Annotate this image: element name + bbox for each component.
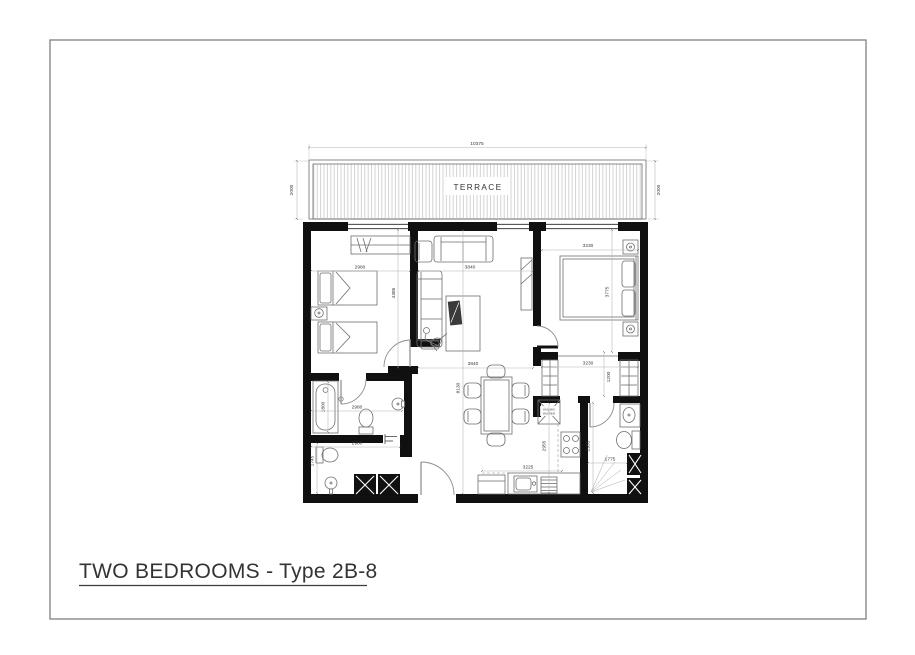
door-bathroom2 xyxy=(590,403,614,427)
dining-table-inner xyxy=(484,380,509,431)
stove xyxy=(561,432,580,457)
dim-living-lower-width: 3840 xyxy=(468,361,479,367)
title-block: TWO BEDROOMS - Type 2B-8 xyxy=(79,560,378,586)
closet-left xyxy=(542,360,558,396)
dining-table xyxy=(481,377,512,434)
shaft-left-2 xyxy=(378,474,400,496)
door-wc-sliding xyxy=(385,434,397,444)
dining-furniture xyxy=(464,365,529,446)
dim-closet-width: 3230 xyxy=(583,361,594,367)
single-bed-1 xyxy=(318,271,377,305)
wall-wc-top xyxy=(303,435,383,443)
dim-master-width: 3230 xyxy=(583,243,594,249)
wall-bathroom2-top-right xyxy=(613,396,648,403)
window-bedroom xyxy=(348,224,408,228)
wall-corner-piece xyxy=(388,366,418,374)
terrace: TERRACE xyxy=(309,160,646,219)
floor-plan-sheet: TERRACE xyxy=(0,0,915,655)
wall-wc-right xyxy=(400,435,412,457)
nightstand-lamp xyxy=(311,307,327,320)
dim-terrace-width: 10375 xyxy=(470,141,484,147)
console-shelf xyxy=(521,258,532,310)
window-living xyxy=(497,224,529,228)
dim-kitchen-depth: 2955 xyxy=(542,440,548,451)
wardrobe xyxy=(351,236,410,254)
drawing-sheet: TERRACE xyxy=(0,0,915,655)
dim-wc-length: 1745 xyxy=(310,455,316,466)
wall-bedroom-bottom-left xyxy=(303,373,339,381)
door-entrance xyxy=(421,462,454,495)
single-bed-2 xyxy=(318,322,377,353)
door-master xyxy=(537,326,558,347)
dim-terrace-depth-left: 2000 xyxy=(289,184,295,195)
shaft-right-2 xyxy=(627,478,643,496)
plan-title: TWO BEDROOMS - Type 2B-8 xyxy=(79,560,378,583)
dim-bathroom2-width: 1775 xyxy=(605,457,616,463)
nightstand-bottom xyxy=(623,322,638,336)
wall-bedroom-bottom-right xyxy=(366,373,410,381)
dim-bathroom2-depth: 2955 xyxy=(586,440,592,451)
shaft-right-1 xyxy=(627,453,643,475)
dim-terrace-depth-right: 2000 xyxy=(656,184,662,195)
toilet-bathroom2 xyxy=(617,431,641,449)
toilet-bathroom1 xyxy=(359,409,373,434)
service-shafts xyxy=(354,453,643,496)
sink-bathroom1 xyxy=(392,398,405,410)
wall-top-2 xyxy=(408,222,497,231)
master-bedroom-furniture xyxy=(560,240,638,336)
shaft-left-1 xyxy=(354,474,376,496)
wall-niche-left-stub xyxy=(533,352,558,360)
kitchen-sink xyxy=(514,476,537,492)
dim-bedroom-width: 2980 xyxy=(355,265,366,271)
dim-closet-depth: 1200 xyxy=(606,371,612,382)
wall-bottom-2 xyxy=(456,494,648,503)
cabinet xyxy=(478,475,505,494)
wall-top-1 xyxy=(303,222,348,231)
dim-kitchen-width: 3225 xyxy=(523,465,534,471)
dim-master-depth: 3775 xyxy=(605,286,611,297)
sink-bathroom2 xyxy=(620,404,640,427)
nightstand-top xyxy=(623,240,638,254)
wall-master-left xyxy=(533,222,541,326)
door-bedroom xyxy=(384,340,411,367)
door-bathroom1 xyxy=(339,379,366,404)
window-master xyxy=(546,224,618,228)
sofa-left xyxy=(417,271,442,347)
dim-overall-depth: 8130 xyxy=(456,382,462,393)
dim-living-width: 3840 xyxy=(465,265,476,271)
double-bed xyxy=(560,256,638,320)
living-room-furniture xyxy=(415,236,532,351)
guest-wc-fixtures xyxy=(316,447,338,494)
sink-wc xyxy=(325,477,337,494)
closet-right xyxy=(620,360,638,396)
dim-wc-width: 2980 xyxy=(352,441,363,447)
sofa-top xyxy=(434,236,493,262)
sheet-border xyxy=(50,40,866,619)
terrace-label: TERRACE xyxy=(454,183,503,192)
dim-bathroom-width: 2980 xyxy=(352,405,363,411)
toilet-wc xyxy=(316,447,338,463)
counter-dashed-edge xyxy=(538,424,558,472)
wall-kitchen-left-stub xyxy=(533,396,541,417)
dim-bedroom-depth: 4385 xyxy=(391,287,397,298)
dim-bathtub-length: 1800 xyxy=(321,401,327,412)
